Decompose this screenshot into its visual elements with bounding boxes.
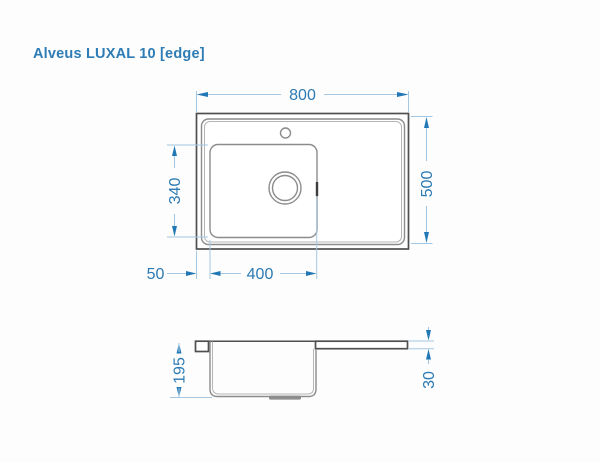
dimension-edge-thickness: 30 [409, 327, 438, 389]
profile-bowl-inner-wall [213, 342, 314, 395]
dimension-label-500: 500 [419, 171, 436, 198]
arrowhead-right [186, 271, 197, 276]
arrowhead-right [397, 92, 409, 97]
profile-bowl-outer-wall [210, 342, 316, 397]
arrowhead-up [426, 349, 431, 360]
dimension-label-800: 800 [289, 87, 316, 104]
dimension-label-50: 50 [147, 266, 165, 283]
arrowhead-left [210, 271, 221, 276]
arrowhead-down [424, 232, 429, 243]
technical-drawing-canvas: 800 500 340 50 [0, 0, 600, 462]
arrowhead-left [197, 92, 209, 97]
profile-drain-boss [269, 396, 301, 400]
dimension-label-30: 30 [421, 371, 438, 389]
dimension-label-340: 340 [167, 178, 184, 205]
dimension-overall-width: 800 [197, 87, 409, 112]
arrowhead-up [172, 146, 177, 157]
arrowhead-down [426, 330, 431, 341]
dimension-label-195: 195 [172, 357, 189, 384]
arrowhead-up [424, 117, 429, 128]
drawing-page: Alveus LUXAL 10 [edge] 800 [0, 0, 600, 462]
arrowhead-right [306, 271, 317, 276]
profile-right-edge-slab [316, 341, 408, 349]
side-view [196, 341, 409, 399]
dimension-overall-depth: 500 [411, 117, 436, 244]
dimension-label-400: 400 [247, 266, 274, 283]
top-view [197, 114, 409, 250]
arrowhead-down [172, 226, 177, 237]
profile-left-edge-block [196, 341, 209, 351]
